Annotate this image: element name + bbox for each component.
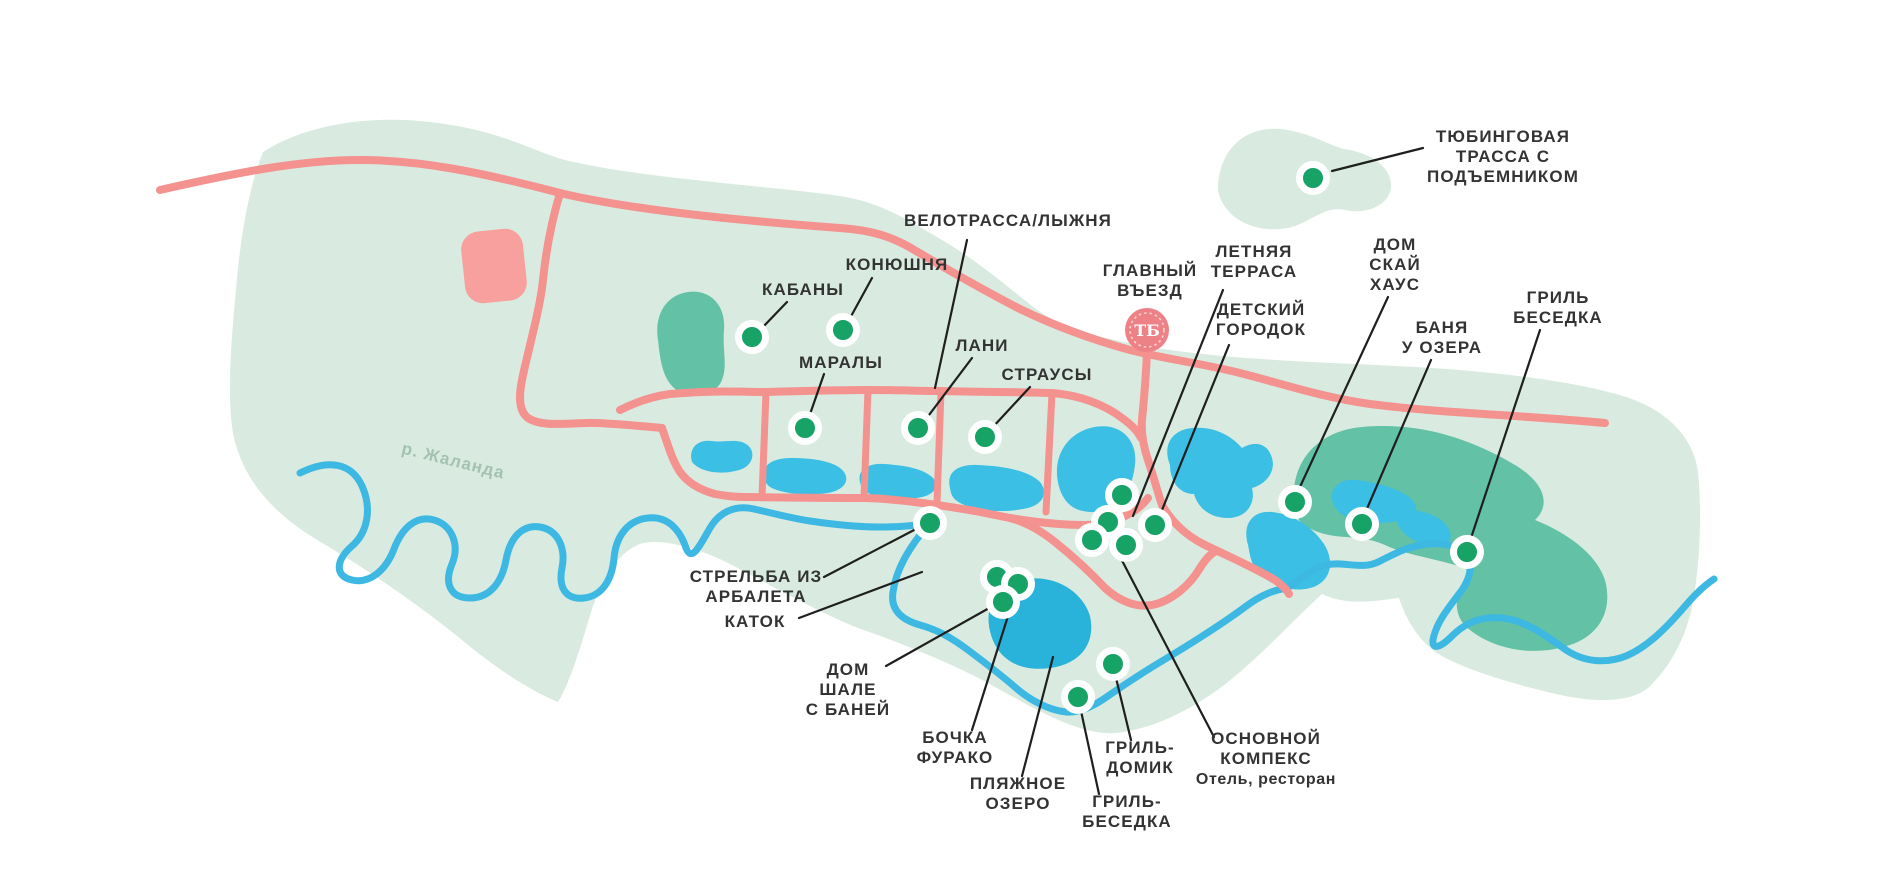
resort-map: ТБ ТЮБИНГОВАЯТРАССА СПОДЪЕМНИКОМВЕЛОТРАС… <box>0 0 1900 888</box>
label-tubing-track: ТЮБИНГОВАЯТРАССА СПОДЪЕМНИКОМ <box>1427 127 1579 186</box>
label-plyazhnoe-ozero: ПЛЯЖНОЕОЗЕРО <box>970 774 1066 813</box>
label-lani: ЛАНИ <box>955 336 1008 355</box>
building-block <box>459 227 528 305</box>
poi-dot-kabany[interactable] <box>739 324 766 351</box>
poi-dot-grill-domik[interactable] <box>1100 651 1127 678</box>
label-osnovnoy-kompleks: ОСНОВНОЙКОМПЕКСОтель, ресторан <box>1196 729 1336 788</box>
label-dom-shale: ДОМШАЛЕС БАНЕЙ <box>806 660 890 719</box>
poi-dot-strelba-iz-arbaleta[interactable] <box>917 510 944 537</box>
poi-dot-dom-sky-house[interactable] <box>1282 489 1309 516</box>
label-detskiy-gorodok: ДЕТСКИЙГОРОДОК <box>1216 300 1306 339</box>
label-letnyaya-terrasa: ЛЕТНЯЯТЕРРАСА <box>1211 242 1298 281</box>
label-kabany: КАБАНЫ <box>762 280 844 299</box>
poi-dot-banya-u-ozera[interactable] <box>1349 511 1376 538</box>
poi-dot-lani[interactable] <box>905 415 932 442</box>
label-dom-sky-house: ДОМСКАЙХАУС <box>1369 235 1421 294</box>
label-grill-besedka-south: ГРИЛЬ-БЕСЕДКА <box>1082 792 1172 831</box>
poi-dot-strausy[interactable] <box>972 424 999 451</box>
poi-dot-detskiy-gorodok[interactable] <box>1142 512 1169 539</box>
entrance-logo-monogram: ТБ <box>1134 321 1160 340</box>
label-banya-u-ozera: БАНЯУ ОЗЕРА <box>1402 318 1482 357</box>
poi-dot-grill-besedka-south[interactable] <box>1065 684 1092 711</box>
label-grill-besedka-east: ГРИЛЬБЕСЕДКА <box>1513 288 1603 327</box>
poi-dot-complex-3[interactable] <box>1079 527 1106 554</box>
poi-dot-maraly[interactable] <box>792 415 819 442</box>
label-strelba-iz-arbaleta: СТРЕЛЬБА ИЗАРБАЛЕТА <box>690 567 823 606</box>
poi-dot-complex-4[interactable] <box>1113 532 1140 559</box>
poi-dot-grill-besedka-east[interactable] <box>1454 539 1481 566</box>
label-glavnyy-vezd: ГЛАВНЫЙВЪЕЗД <box>1103 261 1198 300</box>
poi-dot-dom-shale[interactable] <box>990 589 1017 616</box>
poi-dot-konyushnya[interactable] <box>830 317 857 344</box>
entrance-logo[interactable]: ТБ <box>1125 308 1169 352</box>
label-grill-domik: ГРИЛЬ-ДОМИК <box>1105 738 1175 777</box>
label-maraly: МАРАЛЫ <box>799 353 883 372</box>
label-katok: КАТОК <box>725 612 786 631</box>
label-velotrassa: ВЕЛОТРАССА/ЛЫЖНЯ <box>904 211 1112 230</box>
poi-dot-tubing-track[interactable] <box>1300 165 1327 192</box>
label-strausy: СТРАУСЫ <box>1002 365 1093 384</box>
label-bochka-furako: БОЧКАФУРАКО <box>917 728 994 767</box>
label-konyushnya: КОНЮШНЯ <box>846 255 949 274</box>
poi-dot-letnyaya-terrasa[interactable] <box>1109 482 1136 509</box>
